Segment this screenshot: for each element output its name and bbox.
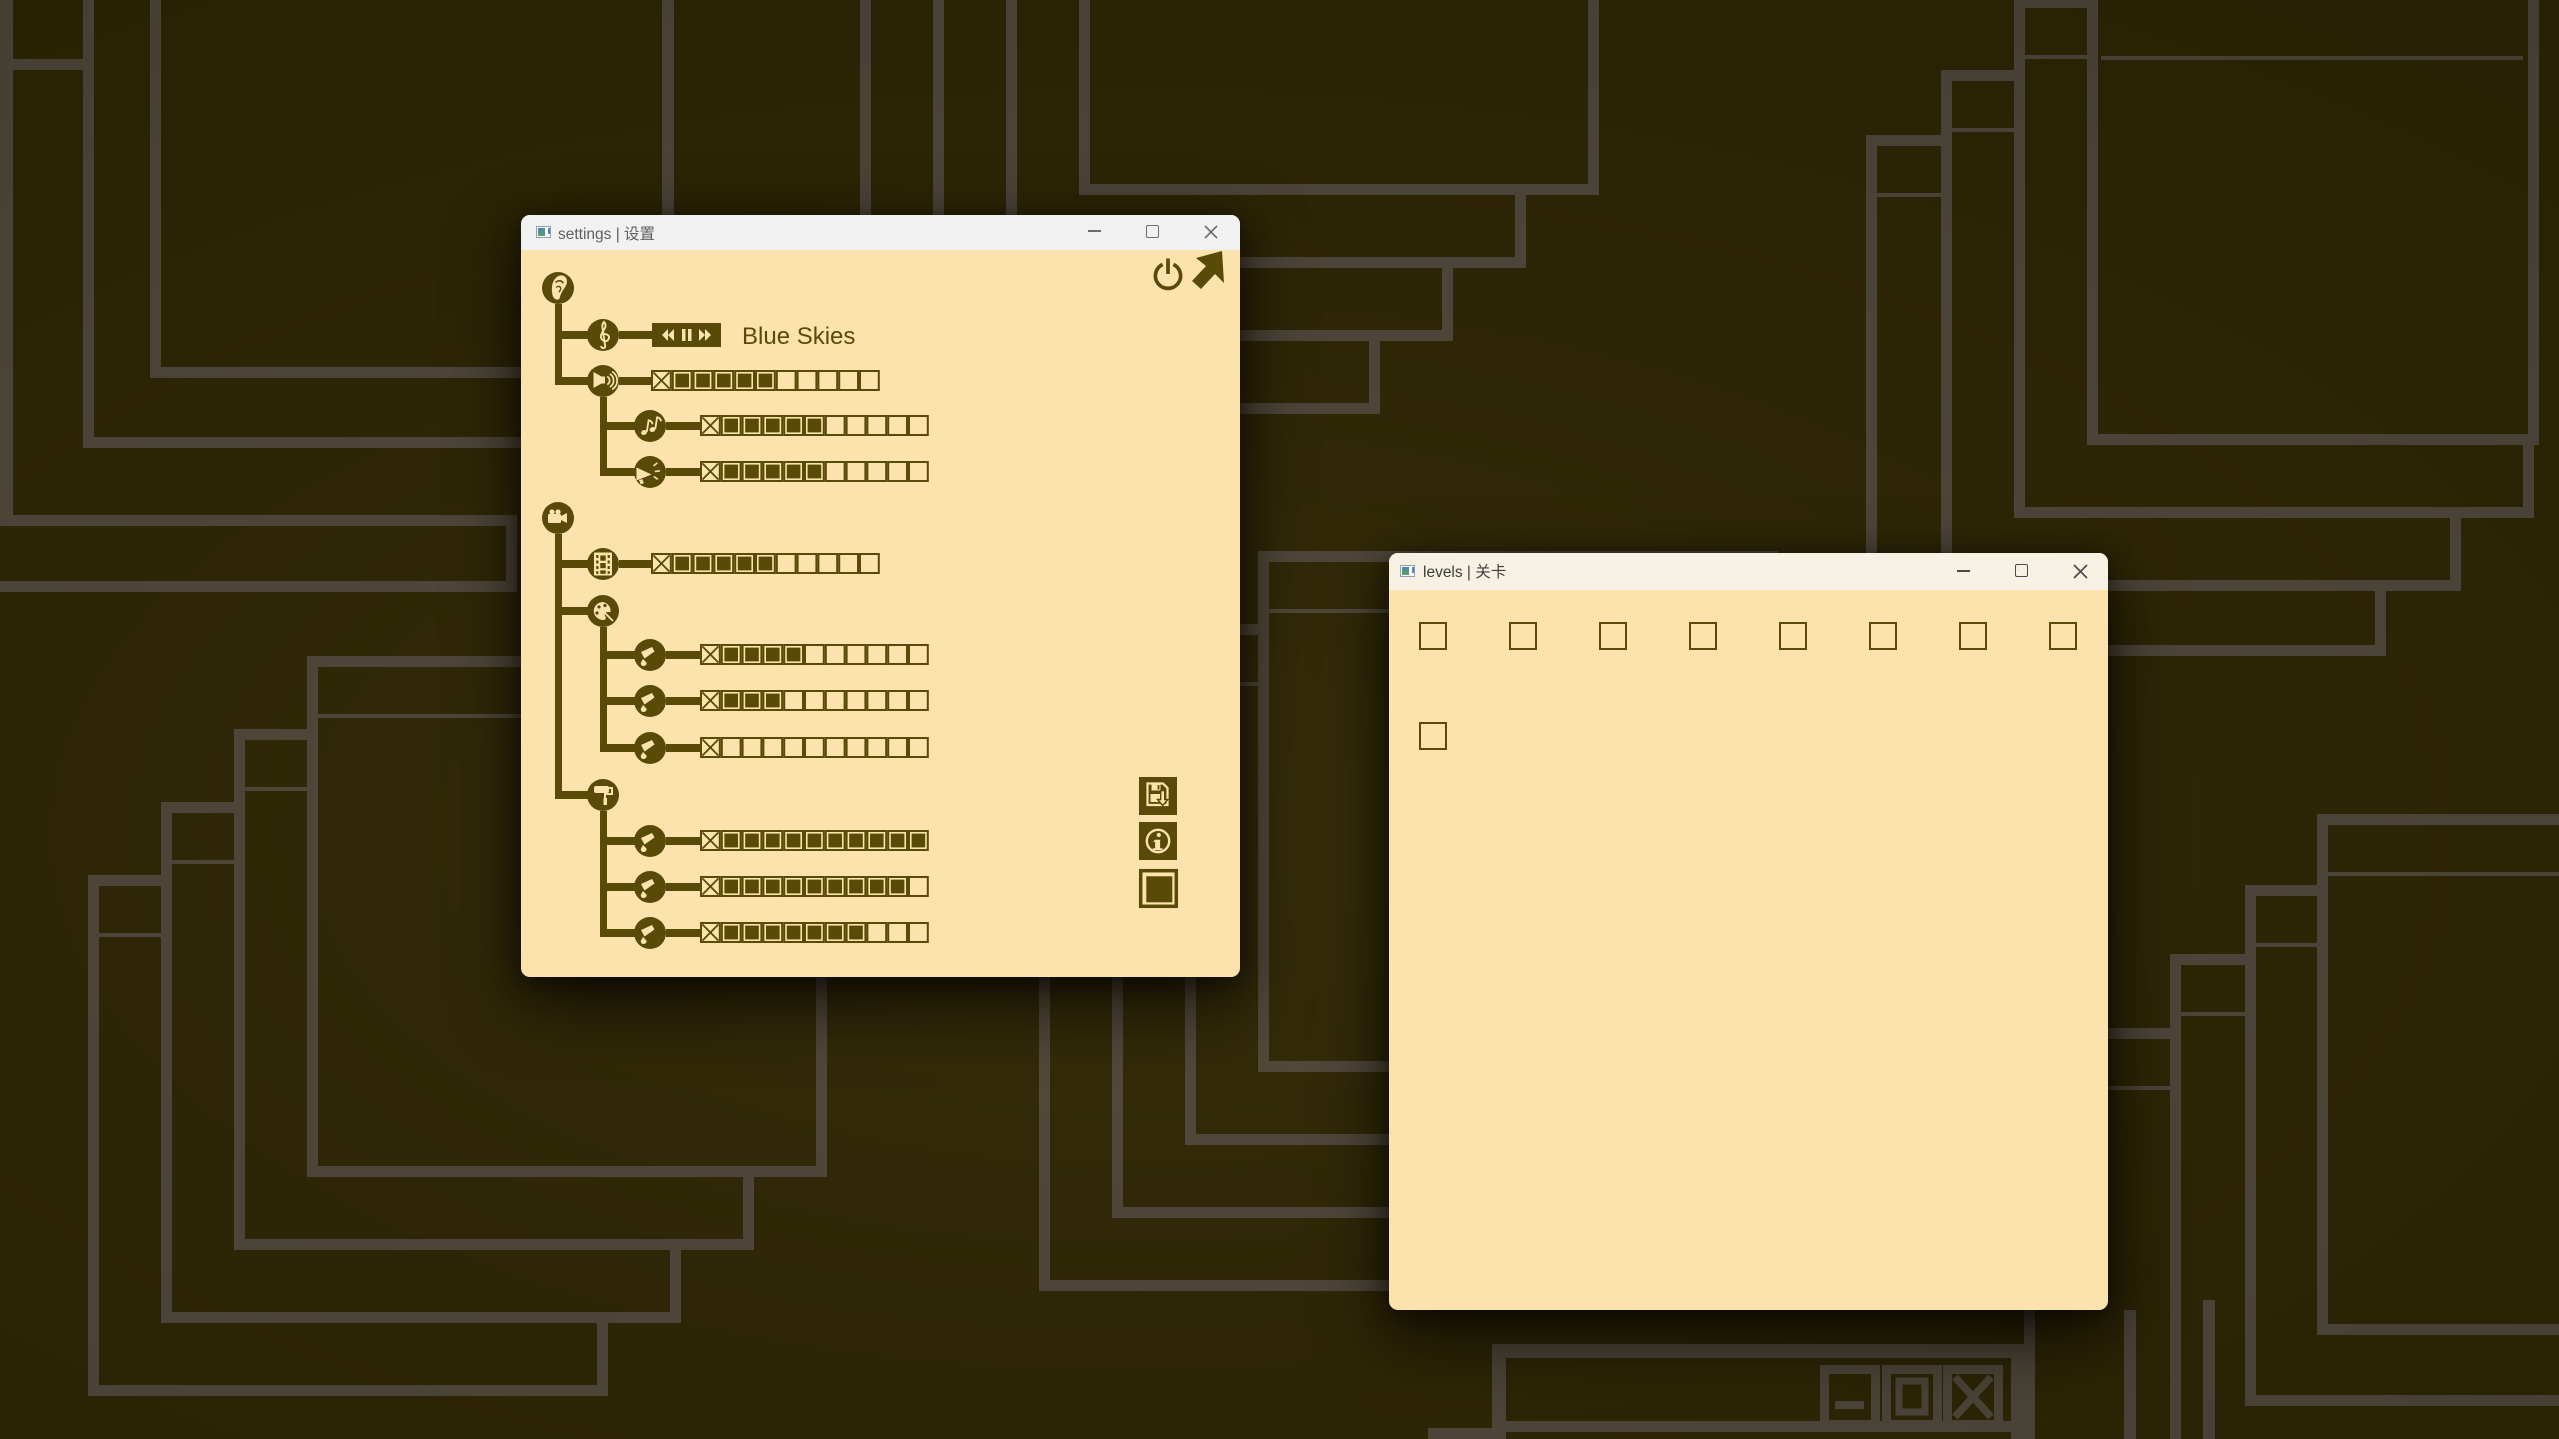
svg-text:Blue Skies: Blue Skies <box>742 323 855 350</box>
